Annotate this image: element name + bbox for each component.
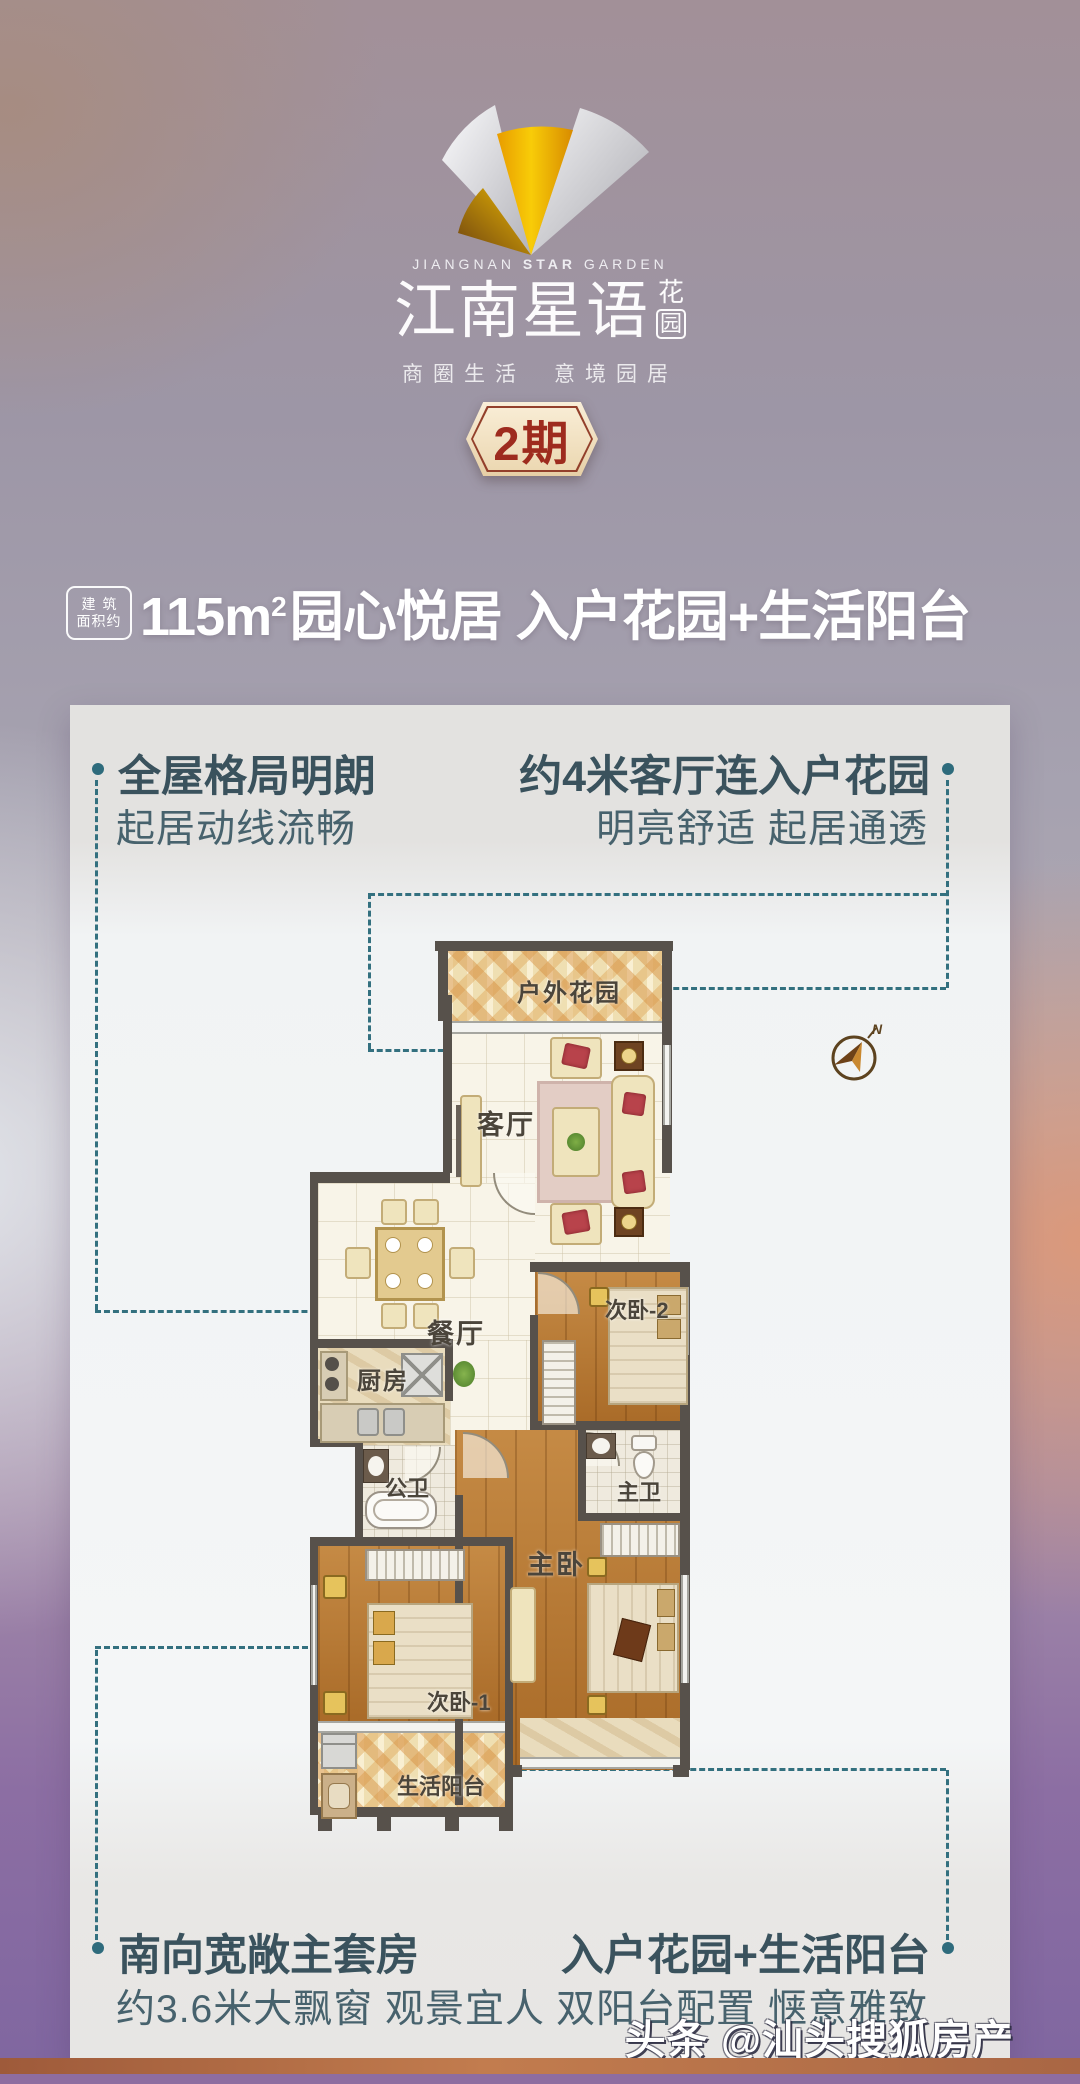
- callout-dot: [942, 763, 954, 775]
- pillow: [561, 1209, 590, 1235]
- plant-icon: [567, 1133, 585, 1151]
- callout-top-left-subtitle: 起居动线流畅: [116, 798, 356, 854]
- master-side-window: [681, 1575, 689, 1683]
- nightstand: [587, 1557, 607, 1577]
- bottom-orange-strip: [0, 2058, 1080, 2074]
- callout-dot: [92, 763, 104, 775]
- wall: [355, 1439, 363, 1543]
- headline-title: 115m2园心悦居 入户花园+生活阳台: [140, 572, 1040, 651]
- washbasin-icon: [592, 1438, 610, 1454]
- wall: [530, 1315, 538, 1430]
- living-window: [663, 1045, 671, 1125]
- brand-name-suffix: 花园: [656, 278, 686, 339]
- bed-pillow: [373, 1611, 395, 1635]
- compass-icon: N: [822, 1018, 894, 1090]
- watermark-text: 头条 @汕头搜狐房产: [625, 2006, 1014, 2066]
- compass-n-label: N: [872, 1021, 883, 1037]
- plate-icon: [385, 1273, 401, 1289]
- laundry-basin-icon: [328, 1783, 350, 1809]
- bed-pillow: [373, 1641, 395, 1665]
- callout-line: [946, 1770, 949, 1940]
- plate-icon: [385, 1237, 401, 1253]
- square-sup: 2: [271, 591, 286, 622]
- bedroom1-window: [311, 1585, 317, 1685]
- wall: [530, 1262, 690, 1272]
- room-label-kitchen: 厨房: [357, 1361, 409, 1396]
- master-bay-window-seat: [520, 1718, 680, 1757]
- washer: [321, 1733, 357, 1769]
- washbasin-icon: [368, 1456, 384, 1476]
- toilet-tank: [631, 1435, 657, 1451]
- dresser: [510, 1587, 536, 1683]
- plant-icon: [453, 1361, 475, 1387]
- plate-icon: [417, 1273, 433, 1289]
- brand-english-name: JIANGNAN STAR GARDEN: [0, 256, 1080, 272]
- room-label-bedroom2: 次卧-2: [605, 1293, 669, 1325]
- room-label-public-bath: 公卫: [385, 1471, 429, 1503]
- nightstand: [587, 1695, 607, 1715]
- wall-pillar: [499, 1815, 513, 1831]
- burner-icon: [325, 1357, 339, 1371]
- callout-dot: [92, 1942, 104, 1954]
- floor-plan: 户外花园 客厅 餐厅 次卧-2 厨房 公卫 主卫 主卧 次卧-1 生活阳台: [305, 935, 695, 1840]
- callout-line: [95, 1650, 98, 1940]
- dining-table: [375, 1227, 445, 1301]
- pillow: [622, 1092, 647, 1117]
- callout-line: [95, 780, 98, 1310]
- wardrobe: [542, 1340, 576, 1425]
- burner-icon: [325, 1377, 339, 1391]
- wall: [578, 1430, 586, 1520]
- wall-pillar: [673, 1765, 689, 1777]
- bed-pillow: [657, 1589, 675, 1617]
- callout-line: [946, 780, 949, 988]
- master-window: [520, 1757, 680, 1769]
- dining-chair: [413, 1199, 439, 1225]
- dining-chair: [381, 1303, 407, 1329]
- fan-logo-icon: [425, 70, 655, 265]
- bed-pillow: [657, 1623, 675, 1651]
- phase-badge-text: 2期: [466, 402, 598, 476]
- room-label-living: 客厅: [477, 1103, 535, 1142]
- room-label-master: 主卧: [527, 1543, 585, 1582]
- pillow: [622, 1170, 647, 1195]
- built-area-badge: 建筑 面积约: [66, 586, 132, 640]
- callout-top-left-title: 全屋格局明朗: [118, 742, 376, 804]
- callout-top-right-title: 约4米客厅连入户花园: [519, 742, 930, 804]
- wall: [578, 1513, 690, 1521]
- wall: [310, 1172, 450, 1183]
- sink-basin: [383, 1408, 405, 1436]
- wardrobe: [600, 1523, 680, 1557]
- phase-badge: 2期: [466, 402, 598, 476]
- brand-tagline: 商圈生活意境园居: [0, 358, 1080, 388]
- wall-pillar: [510, 1765, 522, 1777]
- callout-dot: [942, 1942, 954, 1954]
- callout-bottom-left-subtitle: 约3.6米大飘窗 观景宜人: [116, 1978, 545, 2034]
- bottom-purple-strip: [0, 2074, 1080, 2084]
- room-label-master-bath: 主卫: [617, 1475, 661, 1507]
- wall-pillar: [445, 1815, 459, 1831]
- callout-bottom-left-title: 南向宽敞主套房: [118, 1921, 419, 1983]
- garden-window: [450, 1021, 662, 1034]
- side-table-lamp-icon: [621, 1048, 637, 1064]
- tv-icon: [456, 1105, 461, 1177]
- plate-icon: [417, 1237, 433, 1253]
- sink-basin: [357, 1408, 379, 1436]
- wall: [435, 941, 673, 951]
- side-table-lamp-icon: [621, 1214, 637, 1230]
- room-label-bedroom1: 次卧-1: [427, 1685, 491, 1717]
- room-label-dining: 餐厅: [427, 1312, 485, 1351]
- nightstand: [323, 1691, 347, 1715]
- dining-chair: [345, 1247, 371, 1279]
- wall-pillar: [377, 1815, 391, 1831]
- wall: [310, 1537, 513, 1546]
- dining-chair: [449, 1247, 475, 1279]
- callout-bottom-right-title: 入户花园+生活阳台: [561, 1921, 930, 1983]
- room-label-outdoor-garden: 户外花园: [517, 973, 621, 1008]
- room-label-life-balcony: 生活阳台: [397, 1769, 485, 1801]
- dining-chair: [381, 1199, 407, 1225]
- wall: [443, 995, 452, 1173]
- poster-page: JIANGNAN STAR GARDEN 江南星语花园 商圈生活意境园居 2期 …: [0, 0, 1080, 2084]
- brand-name-main: 江南星语: [394, 277, 650, 346]
- brand-chinese-name: 江南星语花园: [0, 272, 1080, 352]
- callout-line: [369, 893, 946, 896]
- nightstand: [323, 1575, 347, 1599]
- balcony-window: [318, 1721, 505, 1733]
- wardrobe: [365, 1549, 465, 1581]
- callout-top-right-subtitle: 明亮舒适 起居通透: [596, 798, 928, 854]
- wall: [310, 1172, 318, 1447]
